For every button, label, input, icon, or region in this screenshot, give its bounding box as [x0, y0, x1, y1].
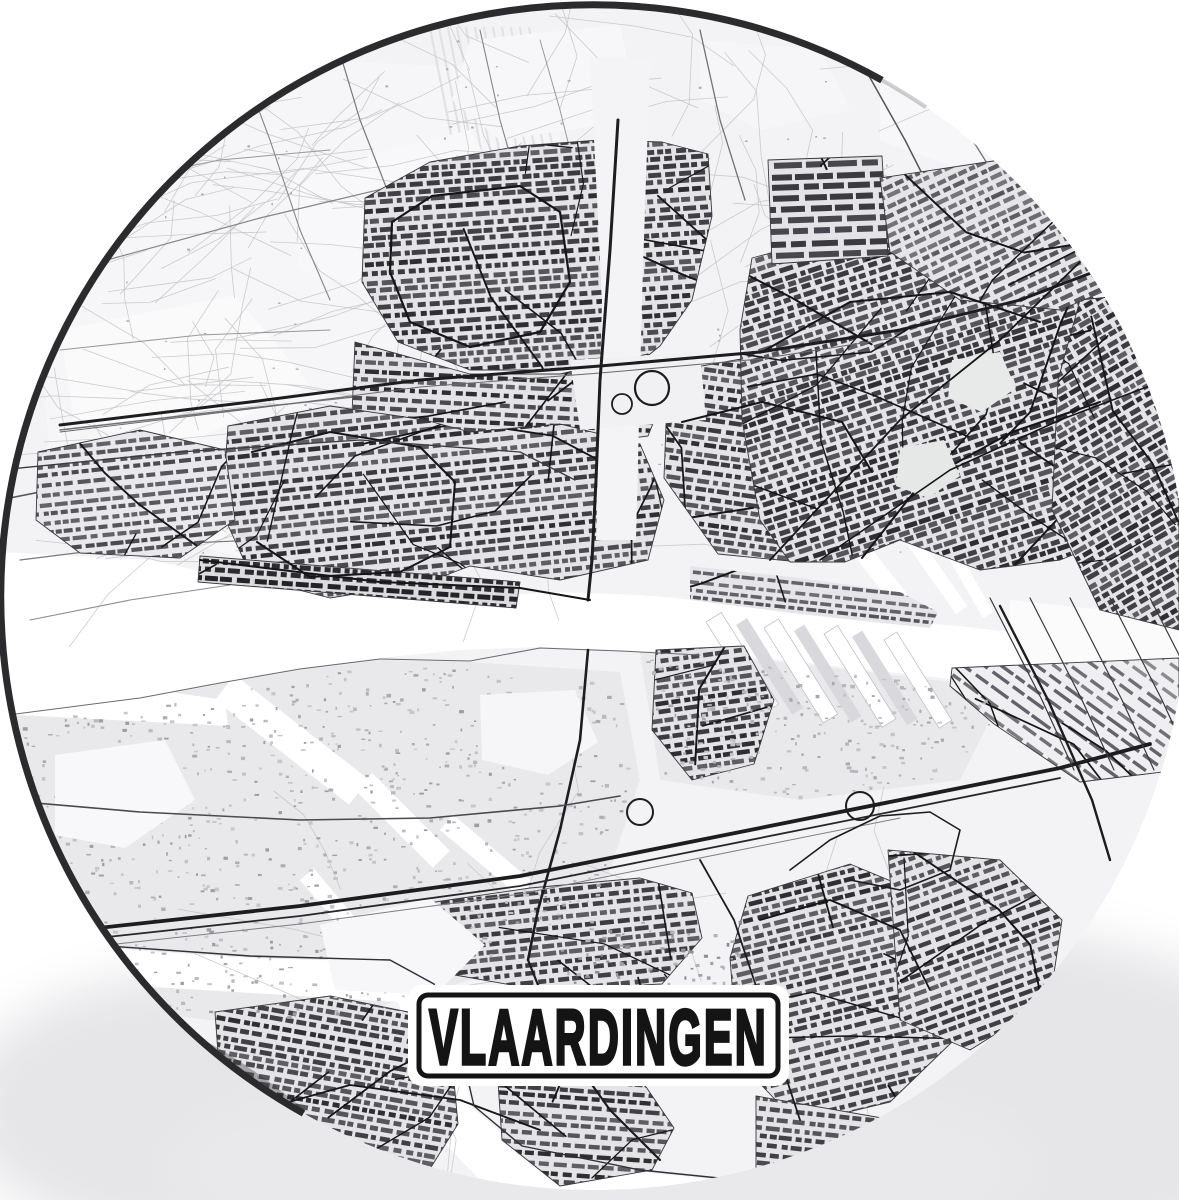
svg-text:VLAARDINGEN: VLAARDINGEN: [429, 995, 768, 1082]
